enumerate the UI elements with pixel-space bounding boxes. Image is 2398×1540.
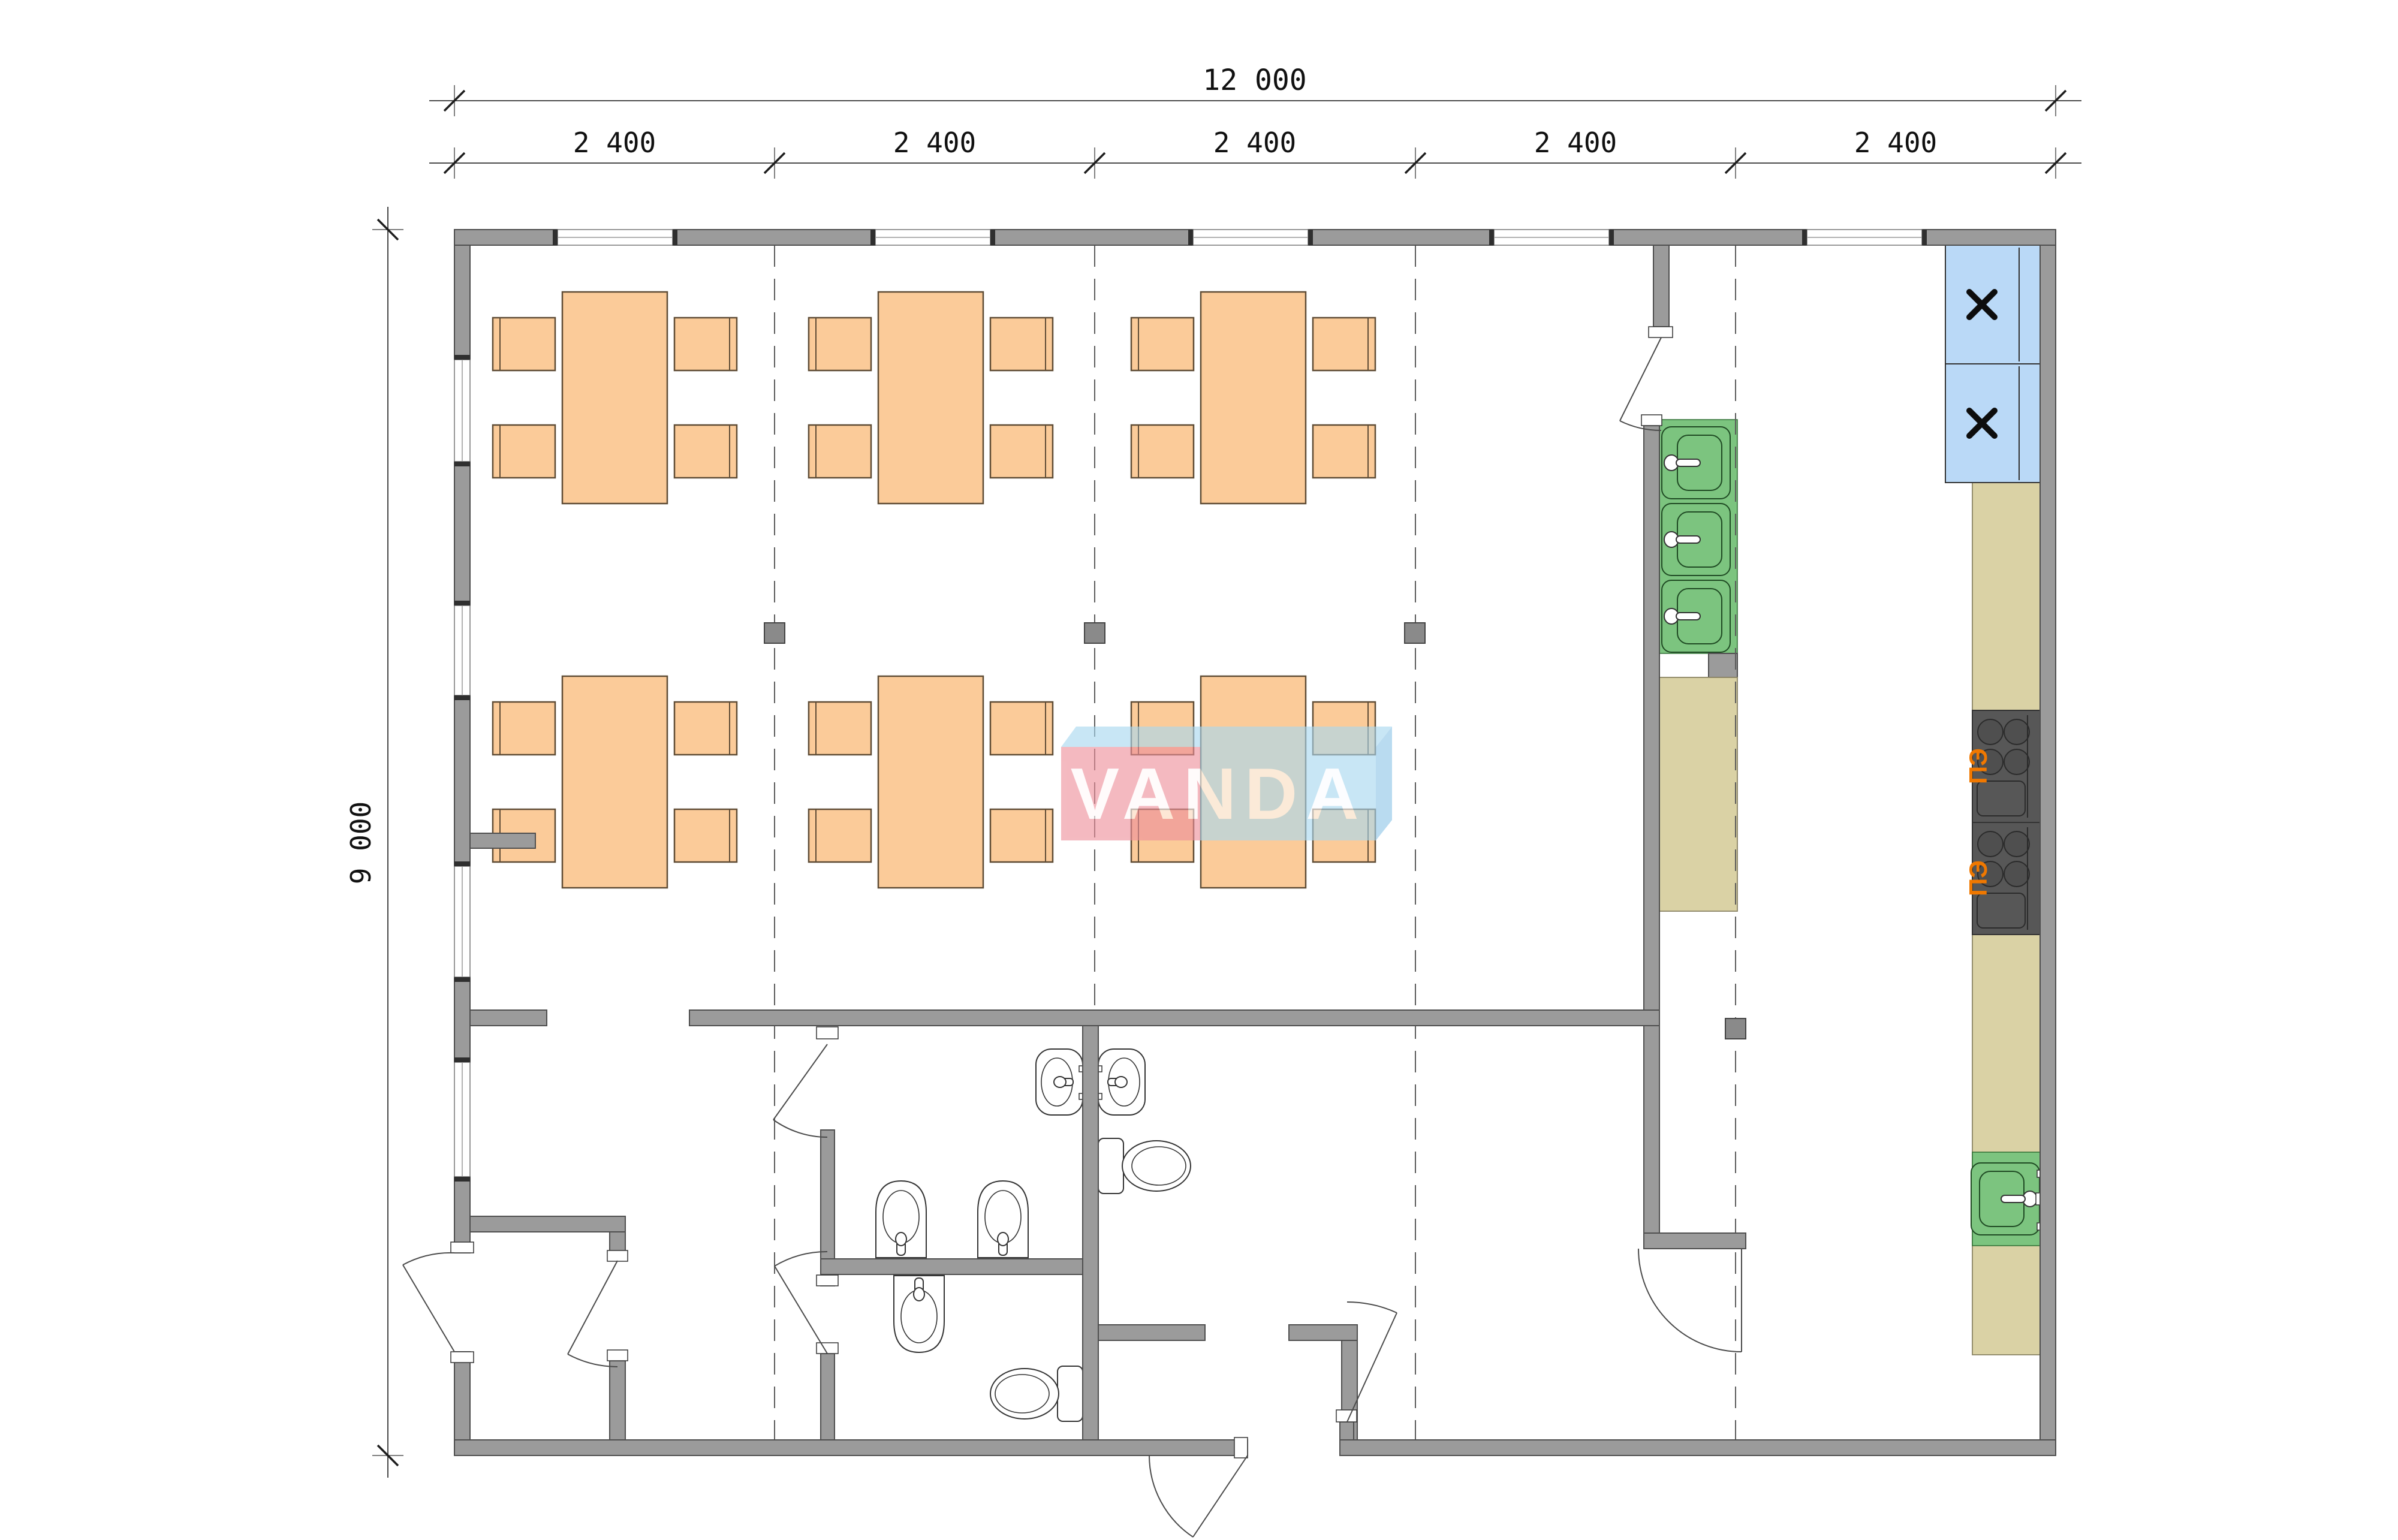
door-swing — [1638, 1249, 1742, 1352]
kitchen-sink — [1971, 1163, 2039, 1235]
toilet — [990, 1366, 1083, 1421]
dimension-label-module-5: 2 400 — [1854, 126, 1937, 159]
door-swing — [1149, 1455, 1248, 1537]
floor-plan-drawing: ПЭ ПЭ — [0, 0, 2398, 1540]
bathroom-middle-wall — [1083, 1026, 1098, 1440]
wash-basin — [894, 1276, 944, 1352]
dining-table-set — [809, 676, 1053, 888]
partition-stub — [470, 833, 535, 848]
kitchen-sink — [1662, 504, 1730, 575]
stove-label: ПЭ — [1964, 860, 1992, 896]
dining-table-set — [809, 292, 1053, 504]
kitchen-equipment: ПЭ ПЭ — [1646, 245, 2044, 1355]
window — [1489, 230, 1614, 245]
watermark-text: VANDA — [1071, 753, 1367, 834]
stove-label: ПЭ — [1964, 748, 1992, 784]
dimension-label-module-1: 2 400 — [573, 126, 656, 159]
kitchen-partition — [1644, 426, 1659, 1010]
electric-stove: ПЭ — [1964, 822, 2040, 935]
door-swing — [773, 1044, 827, 1137]
column — [1084, 623, 1105, 643]
bathroom-wall — [689, 1010, 1659, 1026]
window — [454, 355, 470, 466]
watermark-top-face — [1061, 727, 1392, 747]
counter-wall-stub — [1709, 653, 1737, 677]
dimension-label-total-width: 12 000 — [1203, 64, 1306, 97]
dining-table-set — [1131, 292, 1375, 504]
window — [1188, 230, 1313, 245]
prep-counter — [1659, 677, 1737, 911]
window — [454, 861, 470, 982]
wash-basin — [1036, 1049, 1083, 1115]
vestibule-wall — [470, 1216, 625, 1232]
sanitary-fixtures — [876, 1049, 1191, 1421]
wash-basin — [978, 1181, 1028, 1258]
dining-table-set — [493, 292, 737, 504]
dimension-label-height: 9 000 — [345, 801, 377, 884]
column — [764, 623, 785, 643]
window — [553, 230, 677, 245]
dimension-label-module-4: 2 400 — [1534, 126, 1617, 159]
doors — [403, 337, 1742, 1537]
vanda-watermark: VANDA — [1061, 727, 1392, 840]
window — [454, 1057, 470, 1182]
wash-basin — [1098, 1049, 1145, 1115]
floor-plan-sheet: ПЭ ПЭ — [0, 0, 2398, 1540]
electric-stove: ПЭ — [1964, 710, 2040, 822]
window — [454, 601, 470, 700]
kitchen-sink — [1662, 427, 1730, 499]
column — [1725, 1018, 1746, 1039]
dining-table-set — [493, 676, 737, 888]
refrigerator — [1945, 245, 2040, 364]
kitchen-sink — [1662, 580, 1730, 652]
door-swing — [775, 1252, 827, 1354]
window — [1802, 230, 1927, 245]
wash-basin — [876, 1181, 926, 1258]
column — [1405, 623, 1425, 643]
dimension-label-module-3: 2 400 — [1213, 126, 1296, 159]
door-swing — [403, 1253, 454, 1352]
toilet — [1098, 1138, 1191, 1194]
refrigerator — [1945, 364, 2040, 483]
window — [870, 230, 995, 245]
dimension-label-module-2: 2 400 — [893, 126, 976, 159]
